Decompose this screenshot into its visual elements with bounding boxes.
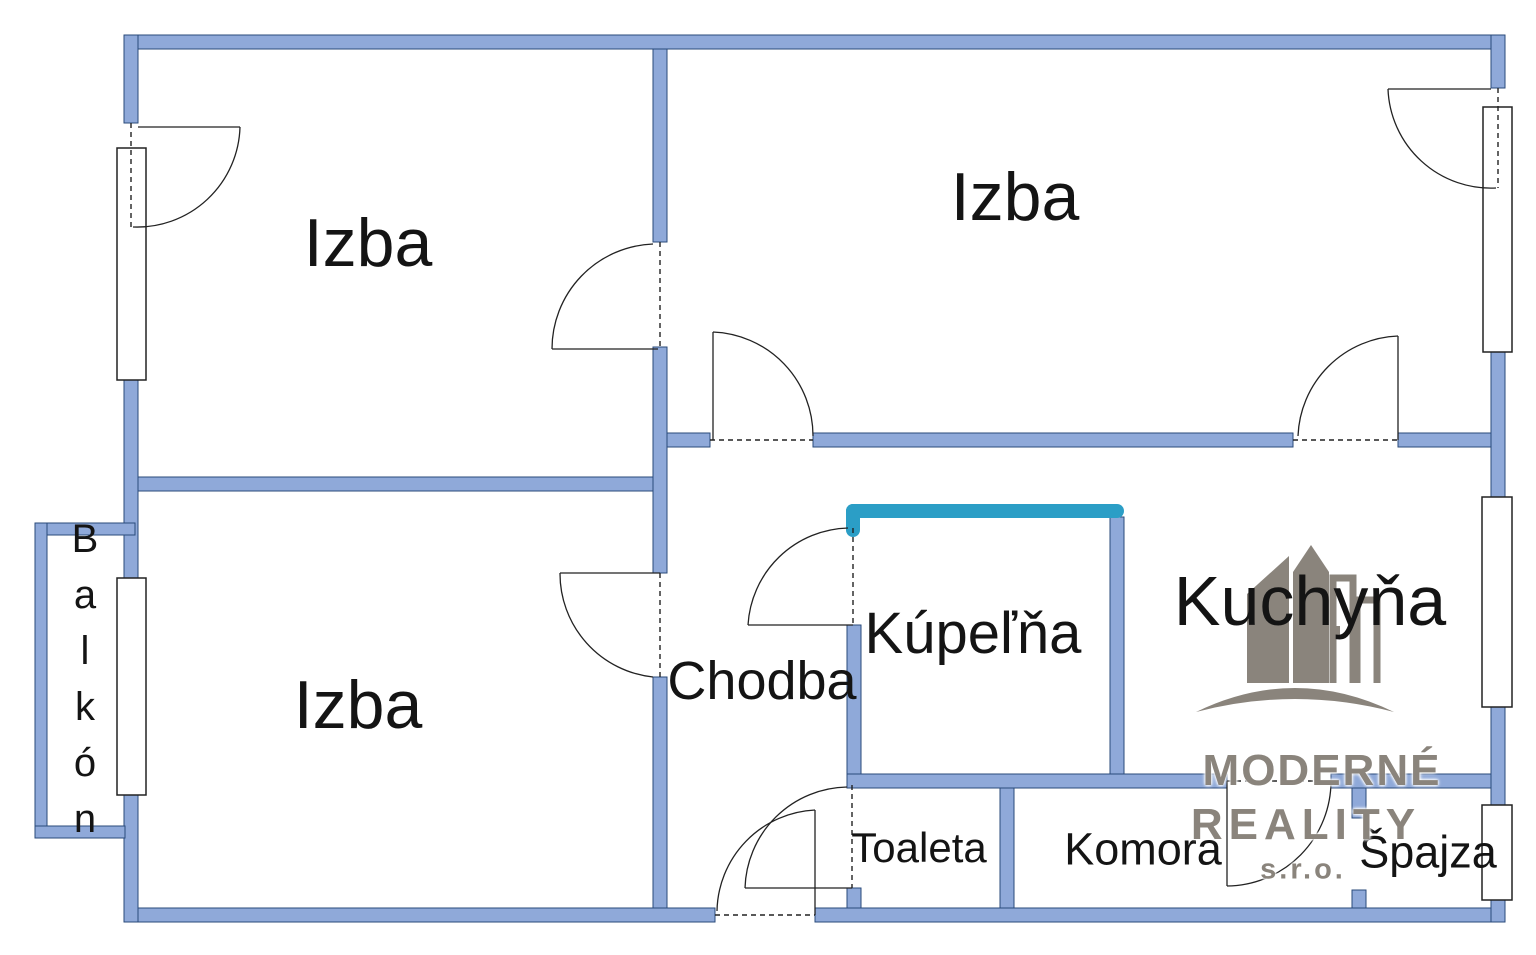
- balcony-wall-left: [35, 523, 47, 838]
- wall-left-3: [124, 795, 138, 922]
- room-label-balkon: Balkón: [65, 517, 105, 853]
- wall-top: [124, 35, 1505, 49]
- wall-bathroom-bottom-a: [847, 774, 1227, 788]
- wall-bottom-left-of-entrance: [124, 908, 715, 922]
- wall-left-1: [124, 35, 138, 123]
- window-top-left-room: [117, 148, 146, 380]
- wall-toilet-stub: [847, 888, 861, 908]
- room-label-izba-top-left: Izba: [304, 209, 433, 277]
- wall-topright-divider-a: [667, 433, 710, 447]
- wall-komora-spajza-bottom: [1352, 890, 1366, 908]
- wall-topright-divider-c: [1398, 433, 1491, 447]
- floor-plan: Izba Izba Izba Balkón Chodba Kúpeľňa Kuc…: [0, 0, 1536, 955]
- wall-topright-divider-b: [813, 433, 1293, 447]
- room-label-toaleta: Toaleta: [851, 827, 986, 869]
- wall-right-1: [1491, 35, 1505, 88]
- wall-central-1: [653, 49, 667, 242]
- room-label-kuchyna: Kuchyňa: [1174, 566, 1446, 636]
- room-label-izba-top-right: Izba: [951, 163, 1080, 231]
- wall-right-2: [1491, 352, 1505, 497]
- highlight-wall-teal: [846, 504, 1124, 537]
- wall-bathroom-right: [1110, 517, 1124, 788]
- window-balcony-door: [117, 578, 146, 795]
- window-kitchen: [1482, 497, 1512, 707]
- wall-bottom-right-of-entrance: [815, 908, 1505, 922]
- watermark-brand-line3: s.r.o.: [1260, 854, 1346, 887]
- wall-central-3: [653, 677, 667, 908]
- wall-right-3: [1491, 707, 1505, 805]
- watermark-brand-line2: REALITY: [1191, 800, 1421, 850]
- logo-swoosh: [1196, 688, 1394, 712]
- wall-left-rooms-divider: [138, 477, 653, 491]
- wall-left-2: [124, 378, 138, 578]
- wall-right-4: [1491, 900, 1505, 922]
- wall-central-2: [653, 347, 667, 573]
- room-label-izba-bottom-left: Izba: [294, 671, 423, 739]
- watermark-brand-line1: MODERNÉ: [1203, 746, 1442, 796]
- wall-toilet-komora-divider: [1000, 788, 1014, 908]
- room-label-kupelna: Kúpeľňa: [865, 605, 1082, 663]
- room-label-chodba: Chodba: [667, 654, 856, 708]
